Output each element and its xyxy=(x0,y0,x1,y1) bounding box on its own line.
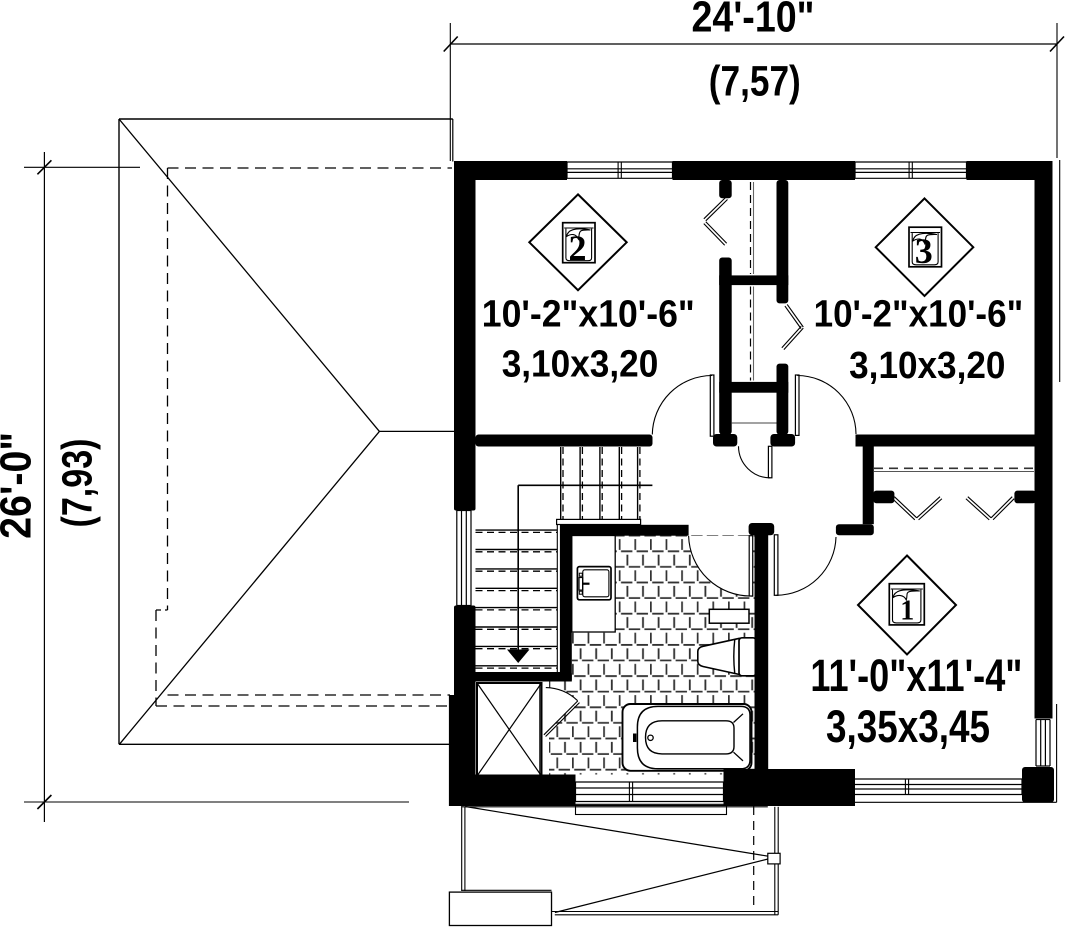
svg-text:3,10x3,20: 3,10x3,20 xyxy=(502,344,659,386)
svg-text:3: 3 xyxy=(915,231,933,271)
svg-text:3,10x3,20: 3,10x3,20 xyxy=(849,345,1005,387)
svg-text:(7,57): (7,57) xyxy=(709,58,801,106)
svg-text:10'-2"x10'-6": 10'-2"x10'-6" xyxy=(814,294,1024,336)
svg-text:24'-10": 24'-10" xyxy=(692,0,815,42)
svg-text:11'-0"x11'-4": 11'-0"x11'-4" xyxy=(810,650,1022,701)
svg-text:2: 2 xyxy=(569,228,587,268)
svg-text:10'-2"x10'-6": 10'-2"x10'-6" xyxy=(482,294,695,336)
svg-text:(7,93): (7,93) xyxy=(54,439,102,528)
svg-text:26'-0": 26'-0" xyxy=(0,432,41,539)
svg-text:3,35x3,45: 3,35x3,45 xyxy=(826,701,990,752)
svg-text:1: 1 xyxy=(900,596,914,627)
